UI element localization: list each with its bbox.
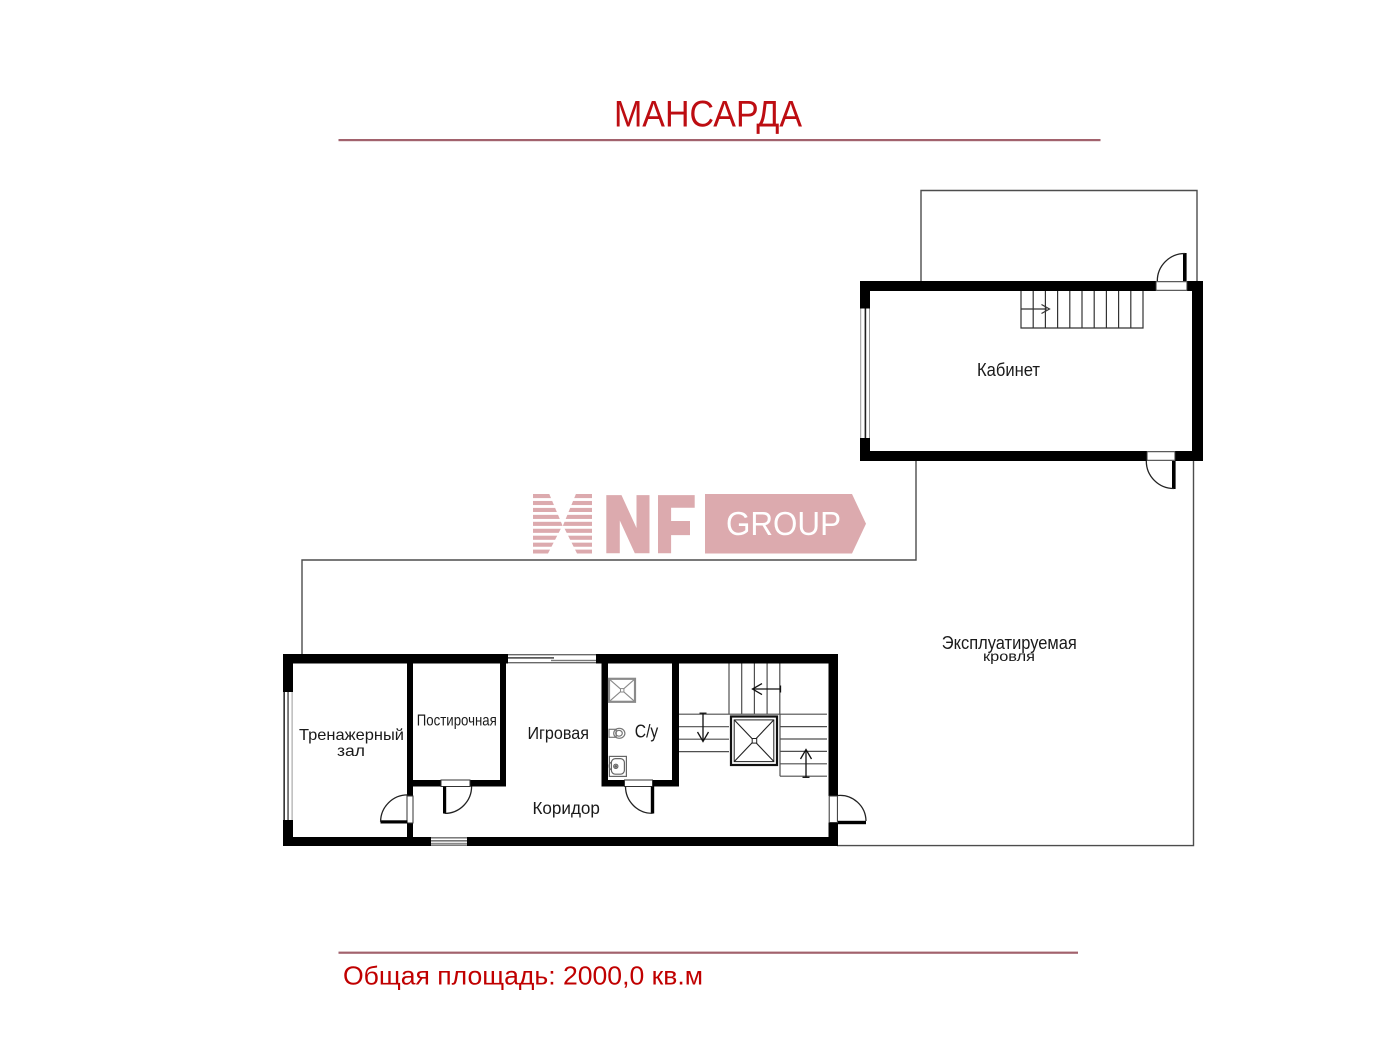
- svg-text:зал: зал: [337, 743, 365, 760]
- svg-text:С/у: С/у: [635, 722, 659, 742]
- svg-text:Коридор: Коридор: [532, 798, 600, 818]
- svg-text:Игровая: Игровая: [527, 723, 589, 743]
- svg-text:GROUP: GROUP: [726, 505, 841, 542]
- svg-text:МАНСАРДА: МАНСАРДА: [614, 94, 802, 135]
- svg-text:кровля: кровля: [983, 648, 1035, 664]
- svg-text:Постирочная: Постирочная: [417, 713, 497, 730]
- svg-text:Тренажерный: Тренажерный: [299, 727, 404, 744]
- svg-text:Кабинет: Кабинет: [977, 360, 1040, 380]
- svg-text:Общая площадь: 2000,0 кв.м: Общая площадь: 2000,0 кв.м: [343, 961, 703, 991]
